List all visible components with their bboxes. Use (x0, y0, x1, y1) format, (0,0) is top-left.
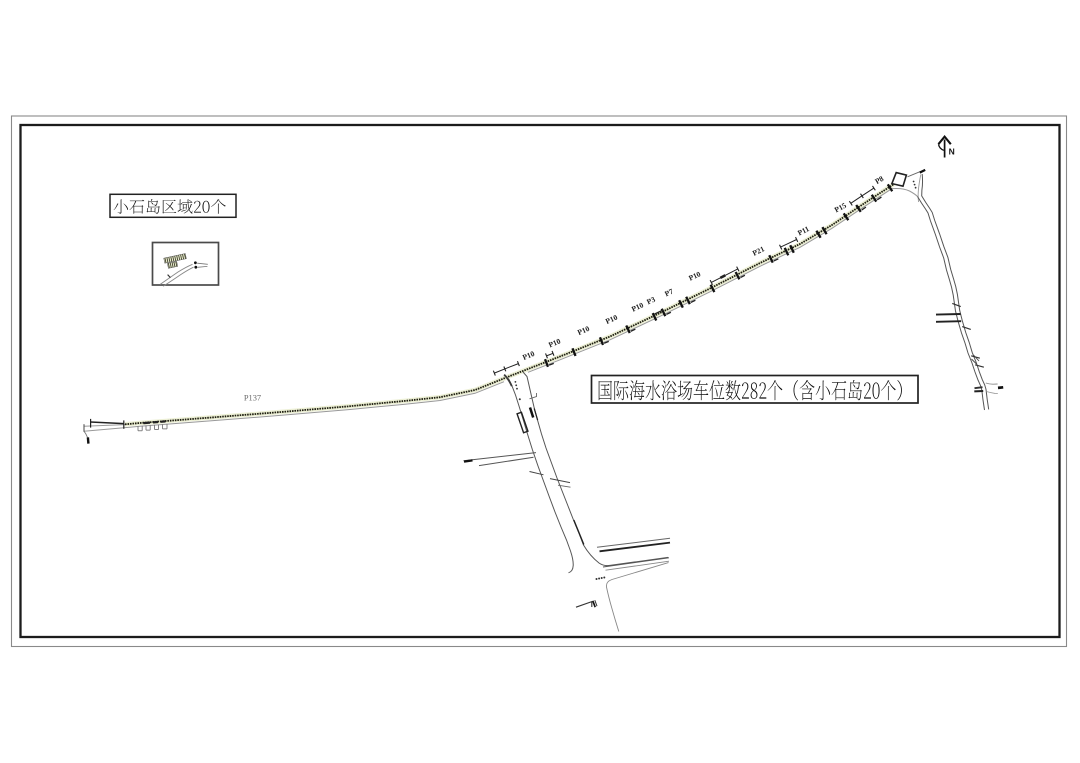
svg-text:P137: P137 (244, 394, 261, 403)
svg-text:N: N (949, 147, 955, 157)
